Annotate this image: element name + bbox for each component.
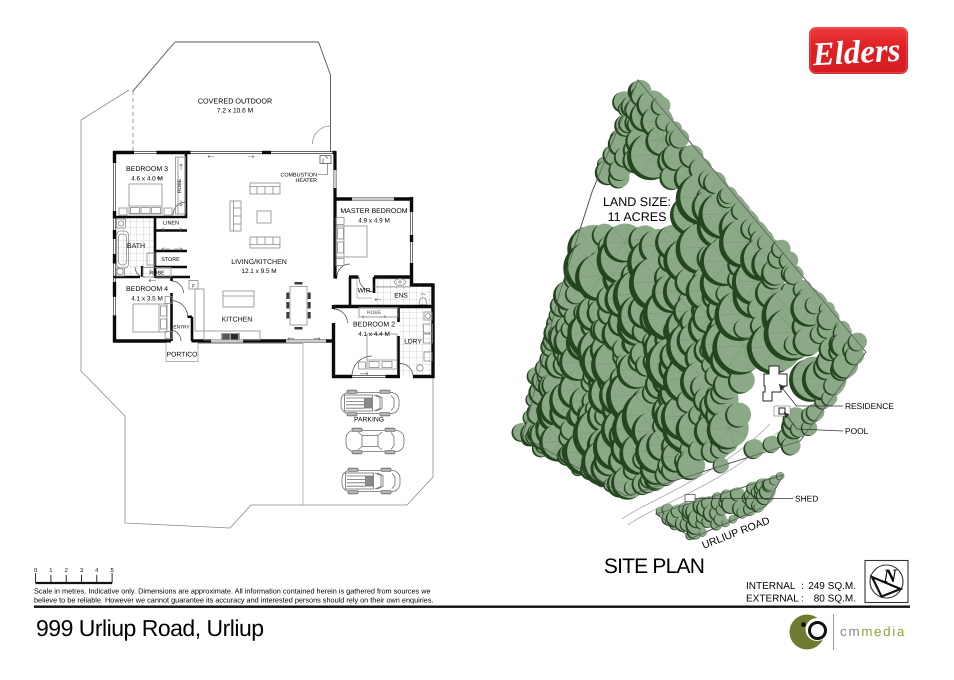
svg-text:ENTRY: ENTRY (173, 325, 190, 331)
svg-text:F: F (192, 284, 195, 289)
svg-text::: : (801, 581, 804, 592)
svg-text:believe to be reliable. Howev: believe to be reliable. However we canno… (34, 596, 434, 605)
svg-text:LAND SIZE:: LAND SIZE: (603, 195, 671, 209)
svg-text:STORE: STORE (161, 257, 180, 263)
svg-text:BEDROOM 3: BEDROOM 3 (126, 166, 168, 173)
svg-text:ROBE: ROBE (367, 310, 382, 316)
svg-text:MASTER BEDROOM: MASTER BEDROOM (340, 208, 407, 215)
svg-text:SITE PLAN: SITE PLAN (604, 555, 704, 578)
svg-text:N: N (882, 566, 898, 587)
svg-text:BATH: BATH (127, 243, 145, 250)
svg-text:POOL: POOL (845, 426, 869, 436)
svg-text:EXTERNAL: EXTERNAL (746, 594, 799, 605)
svg-text:PORTICO: PORTICO (167, 352, 198, 359)
svg-text:RESIDENCE: RESIDENCE (845, 401, 894, 411)
svg-text:INTERNAL: INTERNAL (746, 581, 796, 592)
svg-text:Scale in metres. Indicative o: Scale in metres. Indicative only. Dimens… (34, 587, 431, 596)
svg-text:4.1 x 3.5 M: 4.1 x 3.5 M (131, 296, 163, 303)
svg-text::: : (801, 594, 804, 605)
svg-text:999 Urliup Road, Urliup: 999 Urliup Road, Urliup (36, 615, 264, 641)
svg-text:7.2 x 10.6 M: 7.2 x 10.6 M (217, 108, 253, 115)
svg-text:ENS: ENS (394, 293, 408, 300)
svg-text:cmmedia: cmmedia (840, 624, 906, 639)
svg-text:1: 1 (49, 568, 52, 574)
svg-text:4.9 x 4.9 M: 4.9 x 4.9 M (358, 218, 390, 225)
svg-text:HEATER: HEATER (296, 178, 318, 184)
svg-text:LIVING/KITCHEN: LIVING/KITCHEN (231, 258, 287, 266)
svg-text:12.1 x 9.5 M: 12.1 x 9.5 M (241, 268, 276, 275)
svg-text:COVERED OUTDOOR: COVERED OUTDOOR (198, 97, 272, 106)
svg-text:ROBE: ROBE (149, 271, 165, 277)
svg-text:80 SQ.M.: 80 SQ.M. (814, 594, 856, 605)
svg-text:LDRY: LDRY (404, 339, 422, 346)
svg-text:Elders: Elders (811, 33, 902, 74)
svg-text:WIR: WIR (358, 288, 371, 295)
svg-text:PARKING: PARKING (354, 417, 384, 424)
svg-text:249 SQ.M.: 249 SQ.M. (808, 581, 856, 592)
svg-text:BEDROOM 4: BEDROOM 4 (126, 286, 168, 293)
svg-text:SHED: SHED (795, 494, 818, 504)
svg-text:3: 3 (80, 567, 83, 574)
svg-text:2: 2 (65, 567, 68, 574)
svg-text:LINEN: LINEN (163, 221, 179, 227)
svg-text:11 ACRES: 11 ACRES (608, 210, 667, 224)
svg-text:4.1 x 4.4 M: 4.1 x 4.4 M (358, 331, 390, 338)
svg-text:BEDROOM 2: BEDROOM 2 (353, 322, 395, 329)
svg-text:KITCHEN: KITCHEN (222, 317, 253, 324)
svg-text:4.6 x 4.0 M: 4.6 x 4.0 M (131, 176, 163, 183)
svg-text:5: 5 (110, 568, 113, 574)
svg-text:ROBE: ROBE (177, 178, 183, 193)
svg-text:0: 0 (34, 567, 37, 574)
